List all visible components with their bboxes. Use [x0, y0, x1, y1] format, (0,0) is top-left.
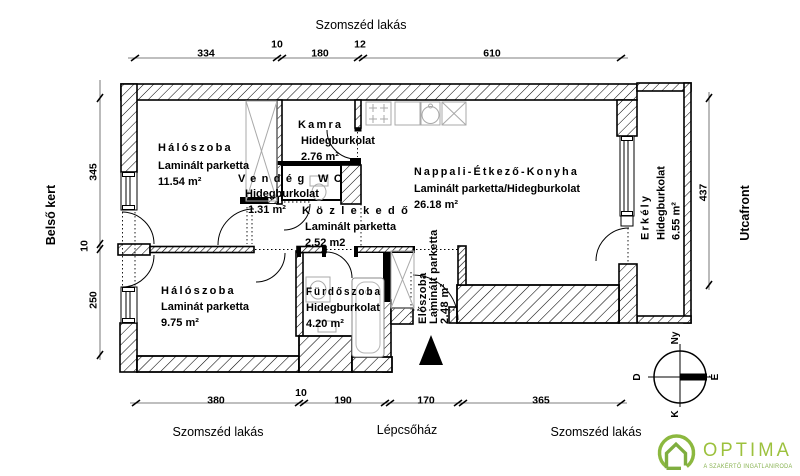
svg-text:334: 334 [197, 48, 215, 60]
svg-text:10: 10 [271, 39, 283, 51]
svg-text:Belső kert: Belső kert [44, 184, 58, 245]
svg-text:1.31 m²: 1.31 m² [248, 204, 286, 216]
svg-text:10: 10 [295, 387, 307, 399]
svg-text:365: 365 [532, 395, 550, 407]
svg-text:Laminát parketta: Laminát parketta [161, 301, 250, 313]
svg-text:190: 190 [334, 395, 352, 407]
svg-text:Közlekedő: Közlekedő [302, 205, 410, 217]
svg-text:2.48 m²: 2.48 m² [439, 283, 451, 324]
svg-text:10: 10 [79, 240, 91, 252]
svg-text:Utcafront: Utcafront [738, 184, 752, 240]
svg-text:A SZAKÉRTŐ INGATLANIRODA: A SZAKÉRTŐ INGATLANIRODA [704, 461, 793, 470]
svg-text:Lépcsőház: Lépcsőház [377, 423, 437, 437]
svg-text:Laminált parketta: Laminált parketta [158, 160, 250, 172]
svg-text:4.20 m²: 4.20 m² [306, 318, 344, 330]
svg-text:Hidegburkolat: Hidegburkolat [245, 188, 319, 200]
svg-text:Szomszéd lakás: Szomszéd lakás [172, 425, 263, 439]
svg-text:OPTIMA: OPTIMA [703, 440, 792, 461]
svg-text:Hidegburkolat: Hidegburkolat [301, 135, 375, 147]
svg-text:2.52 m2: 2.52 m2 [305, 237, 345, 249]
svg-text:345: 345 [88, 163, 100, 181]
svg-text:437: 437 [698, 184, 710, 202]
svg-text:11.54 m²: 11.54 m² [158, 176, 202, 188]
svg-text:D: D [632, 373, 643, 380]
svg-text:Ny: Ny [670, 331, 681, 344]
svg-text:6.55 m²: 6.55 m² [671, 202, 683, 240]
svg-text:2.76 m²: 2.76 m² [301, 151, 339, 163]
svg-text:170: 170 [417, 395, 435, 407]
svg-text:É: É [708, 373, 721, 380]
svg-text:Laminált parketta/Hidegburkola: Laminált parketta/Hidegburkolat [414, 183, 580, 195]
svg-text:Szomszéd lakás: Szomszéd lakás [550, 425, 641, 439]
svg-text:Kamra: Kamra [298, 119, 343, 131]
svg-text:Erkély: Erkély [640, 194, 652, 240]
svg-text:610: 610 [483, 48, 501, 60]
svg-text:Hálószoba: Hálószoba [158, 142, 233, 154]
svg-text:Laminált parketta: Laminált parketta [305, 221, 397, 233]
svg-text:Hidegburkolat: Hidegburkolat [306, 302, 380, 314]
svg-text:12: 12 [354, 39, 366, 51]
svg-text:26.18 m²: 26.18 m² [414, 199, 458, 211]
svg-text:Nappali-Étkező-Konyha: Nappali-Étkező-Konyha [414, 165, 579, 178]
svg-text:Fürdőszoba: Fürdőszoba [306, 286, 382, 298]
svg-text:380: 380 [207, 395, 225, 407]
svg-text:Szomszéd lakás: Szomszéd lakás [315, 18, 406, 32]
svg-text:Vendég WC: Vendég WC [238, 173, 344, 185]
svg-text:Hidegburkolat: Hidegburkolat [656, 166, 668, 240]
svg-text:180: 180 [311, 48, 329, 60]
svg-text:9.75 m²: 9.75 m² [161, 317, 199, 329]
svg-text:250: 250 [88, 291, 100, 309]
svg-text:K: K [670, 410, 681, 418]
svg-text:Hálószoba: Hálószoba [161, 285, 236, 297]
